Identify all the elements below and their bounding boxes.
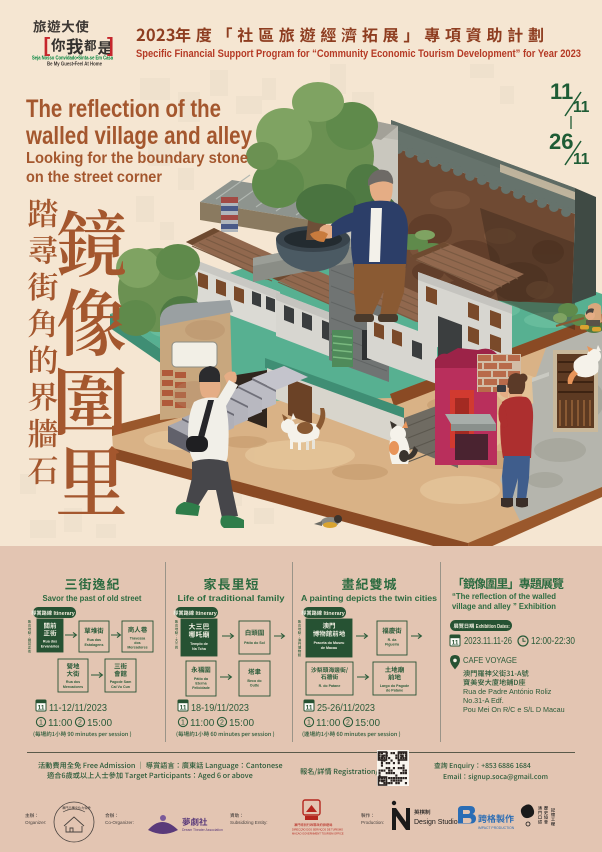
svg-text:Itinerary: Itinerary bbox=[324, 611, 345, 617]
svg-text:Felicidade: Felicidade bbox=[192, 686, 210, 690]
svg-text:11: 11 bbox=[306, 705, 313, 712]
svg-text:11-12/11/2023: 11-12/11/2023 bbox=[49, 702, 107, 714]
svg-text:11: 11 bbox=[573, 99, 590, 116]
svg-text:18-19/11/2023: 18-19/11/2023 bbox=[191, 702, 249, 714]
svg-text:25-26/11/2023: 25-26/11/2023 bbox=[317, 702, 375, 714]
svg-text:Organizer:: Organizer: bbox=[25, 820, 46, 825]
svg-text:Itinerary: Itinerary bbox=[54, 611, 75, 617]
svg-text:2: 2 bbox=[220, 720, 224, 727]
svg-text:15:00: 15:00 bbox=[87, 718, 112, 729]
svg-text:26: 26 bbox=[549, 129, 573, 154]
svg-text:11: 11 bbox=[573, 151, 590, 168]
svg-text:1: 1 bbox=[181, 720, 185, 727]
svg-text:Subsidizing Entity:: Subsidizing Entity: bbox=[230, 820, 268, 825]
svg-text:Savor the past of old street: Savor the past of old street bbox=[43, 593, 142, 603]
svg-text:The reflection of the: The reflection of the bbox=[26, 95, 221, 123]
svg-text:Estalagens: Estalagens bbox=[85, 643, 104, 647]
svg-text:Looking for the boundary stone: Looking for the boundary stone bbox=[26, 150, 248, 167]
svg-text:A painting depicts the twin ci: A painting depicts the twin cities bbox=[301, 593, 437, 603]
svg-text:Pátio da: Pátio da bbox=[194, 677, 209, 681]
svg-text:Specific Financial Support Pro: Specific Financial Support Program for “… bbox=[136, 48, 581, 60]
svg-text:11:00: 11:00 bbox=[48, 718, 73, 729]
svg-text:1: 1 bbox=[307, 720, 311, 727]
svg-text:Ervanários: Ervanários bbox=[41, 645, 60, 649]
svg-text:2: 2 bbox=[78, 720, 82, 727]
svg-text:R. do Patane: R. do Patane bbox=[319, 684, 341, 688]
svg-text:Cai Vu Cun: Cai Vu Cun bbox=[111, 685, 130, 689]
svg-text:Rua de Padre António Roliz: Rua de Padre António Roliz bbox=[463, 687, 552, 696]
svg-text:dos: dos bbox=[134, 641, 140, 645]
svg-text:Pagode Sam: Pagode Sam bbox=[110, 680, 132, 684]
svg-text:[: [ bbox=[44, 35, 51, 57]
svg-text:de Macau: de Macau bbox=[321, 646, 337, 650]
svg-text:Travessa: Travessa bbox=[130, 637, 146, 641]
svg-text:Templo de: Templo de bbox=[190, 642, 208, 646]
svg-text:No.31-A Edf.: No.31-A Edf. bbox=[463, 696, 504, 705]
svg-text:R. da: R. da bbox=[388, 638, 398, 642]
svg-text:Co-Organizer:: Co-Organizer: bbox=[105, 820, 134, 825]
svg-text:Beco do: Beco do bbox=[247, 679, 262, 683]
svg-text:Rua dos: Rua dos bbox=[66, 680, 80, 684]
svg-text:Figueira: Figueira bbox=[385, 643, 400, 647]
svg-text:Exhibition Dates:: Exhibition Dates: bbox=[476, 624, 510, 630]
svg-text:11: 11 bbox=[452, 640, 459, 647]
svg-text:11: 11 bbox=[180, 705, 187, 712]
svg-text:Mercadores: Mercadores bbox=[127, 646, 147, 650]
svg-text:12:00-22:30: 12:00-22:30 bbox=[531, 636, 575, 647]
svg-text:11: 11 bbox=[38, 705, 45, 712]
svg-text:15:00: 15:00 bbox=[229, 718, 254, 729]
svg-text:Dream Theater Association: Dream Theater Association bbox=[182, 828, 223, 832]
svg-text:CAFE VOYAGE: CAFE VOYAGE bbox=[463, 655, 517, 665]
svg-text:on the street corner: on the street corner bbox=[26, 169, 162, 186]
svg-text:Production:: Production: bbox=[361, 820, 384, 825]
svg-text:Largo do Pagode: Largo do Pagode bbox=[380, 684, 409, 688]
svg-text:walled village and alley: walled village and alley bbox=[25, 122, 252, 150]
svg-text:Rua dos: Rua dos bbox=[43, 640, 57, 644]
svg-text:DIRECÇÃO DOS SERVIÇOS DE TURIS: DIRECÇÃO DOS SERVIÇOS DE TURISMO bbox=[292, 827, 343, 832]
svg-text:1: 1 bbox=[39, 720, 43, 727]
svg-text:2: 2 bbox=[346, 720, 350, 727]
svg-text:Mercadores: Mercadores bbox=[63, 685, 83, 689]
svg-text:village and alley ” Exhibition: village and alley ” Exhibition bbox=[452, 601, 556, 611]
svg-text:Itinerary: Itinerary bbox=[196, 611, 217, 617]
svg-text:Praceta do Museu: Praceta do Museu bbox=[314, 641, 345, 645]
svg-text:IMPACT PRODUCTION: IMPACT PRODUCTION bbox=[478, 826, 515, 830]
svg-text:Pátio do Sol: Pátio do Sol bbox=[244, 641, 265, 645]
svg-text:11:00: 11:00 bbox=[190, 718, 215, 729]
svg-text:Eterna: Eterna bbox=[195, 682, 207, 686]
svg-text:do Patane: do Patane bbox=[386, 689, 403, 693]
svg-text:11:00: 11:00 bbox=[316, 718, 341, 729]
svg-text:Design Studio: Design Studio bbox=[414, 819, 458, 826]
svg-text:]: ] bbox=[107, 35, 114, 57]
svg-text:Na Tcha: Na Tcha bbox=[192, 647, 207, 651]
svg-text:11: 11 bbox=[550, 79, 573, 104]
svg-text:Rua das: Rua das bbox=[87, 638, 101, 642]
svg-text:Outte: Outte bbox=[250, 684, 259, 688]
svg-text:“The reflection of the walled: “The reflection of the walled bbox=[452, 591, 556, 601]
svg-text:Life of traditional family: Life of traditional family bbox=[178, 593, 285, 603]
svg-text:Be My Guest•Feel At Home: Be My Guest•Feel At Home bbox=[47, 62, 102, 68]
svg-text:2023.11.11-26: 2023.11.11-26 bbox=[464, 636, 512, 647]
svg-text:MACAO GOVERNMENT TOURISM OFFIC: MACAO GOVERNMENT TOURISM OFFICE bbox=[292, 832, 344, 836]
svg-text:15:00: 15:00 bbox=[355, 718, 380, 729]
svg-text:Pou Mei On R/C e S/L D Macau: Pou Mei On R/C e S/L D Macau bbox=[463, 705, 565, 714]
